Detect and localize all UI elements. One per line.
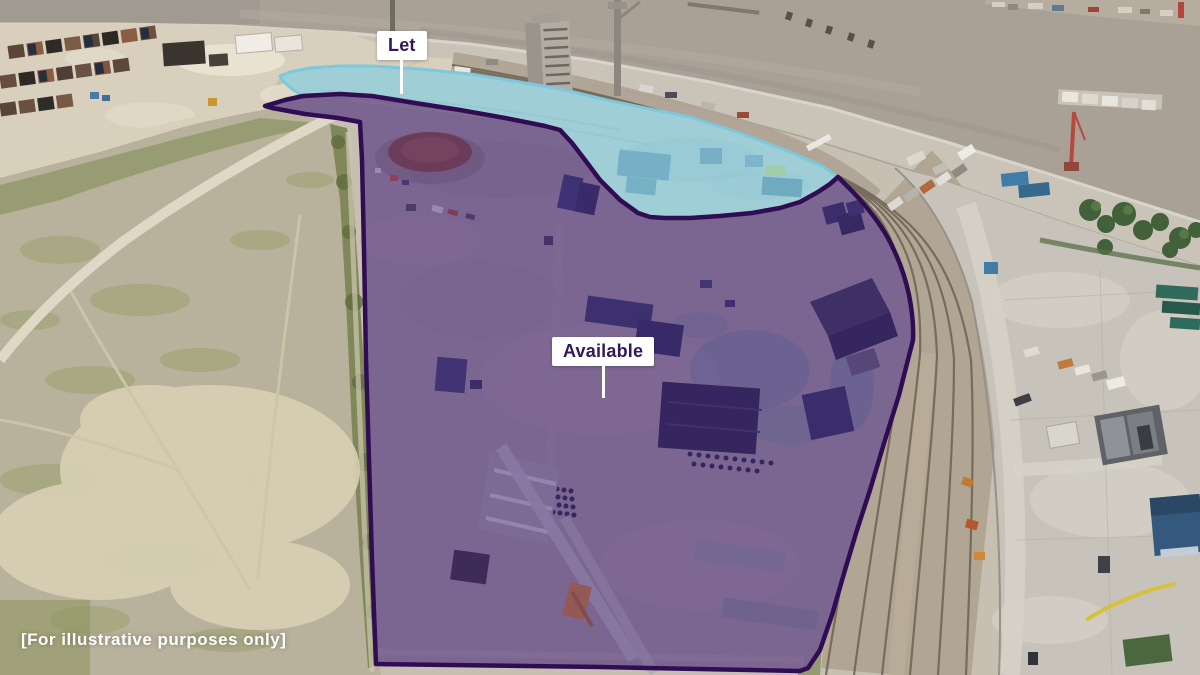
available-label[interactable]: Available <box>552 337 654 366</box>
let-pointer-line <box>400 60 403 94</box>
aerial-site-plan: Let Available [For illustrative purposes… <box>0 0 1200 675</box>
let-label-pin[interactable]: Let <box>377 31 427 94</box>
disclaimer-text: [For illustrative purposes only] <box>21 630 286 650</box>
dark-barn <box>162 41 206 67</box>
green-dumpster <box>1123 634 1173 667</box>
canopy-shed <box>1046 422 1079 449</box>
chimney <box>1178 2 1184 18</box>
available-label-pin[interactable]: Available <box>552 337 654 398</box>
blue-building <box>1150 494 1200 558</box>
let-label[interactable]: Let <box>377 31 427 60</box>
available-pointer-line <box>602 366 605 398</box>
